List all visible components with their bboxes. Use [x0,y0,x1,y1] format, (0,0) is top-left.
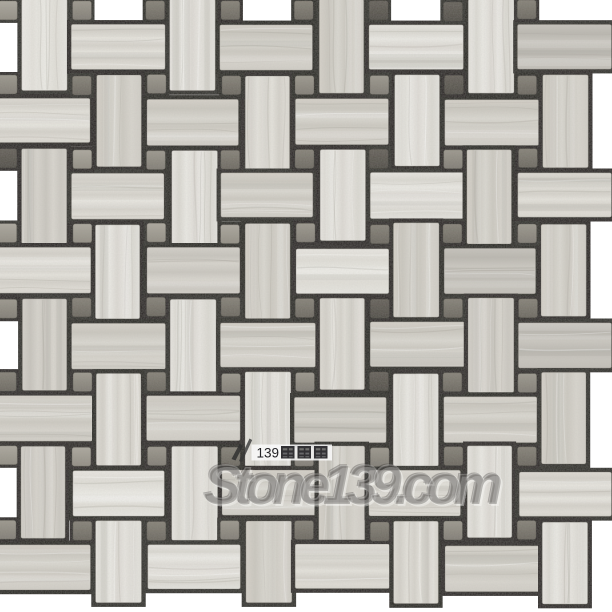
svg-text:Stone139.com: Stone139.com [204,453,503,516]
svg-text:139: 139 [257,446,280,461]
